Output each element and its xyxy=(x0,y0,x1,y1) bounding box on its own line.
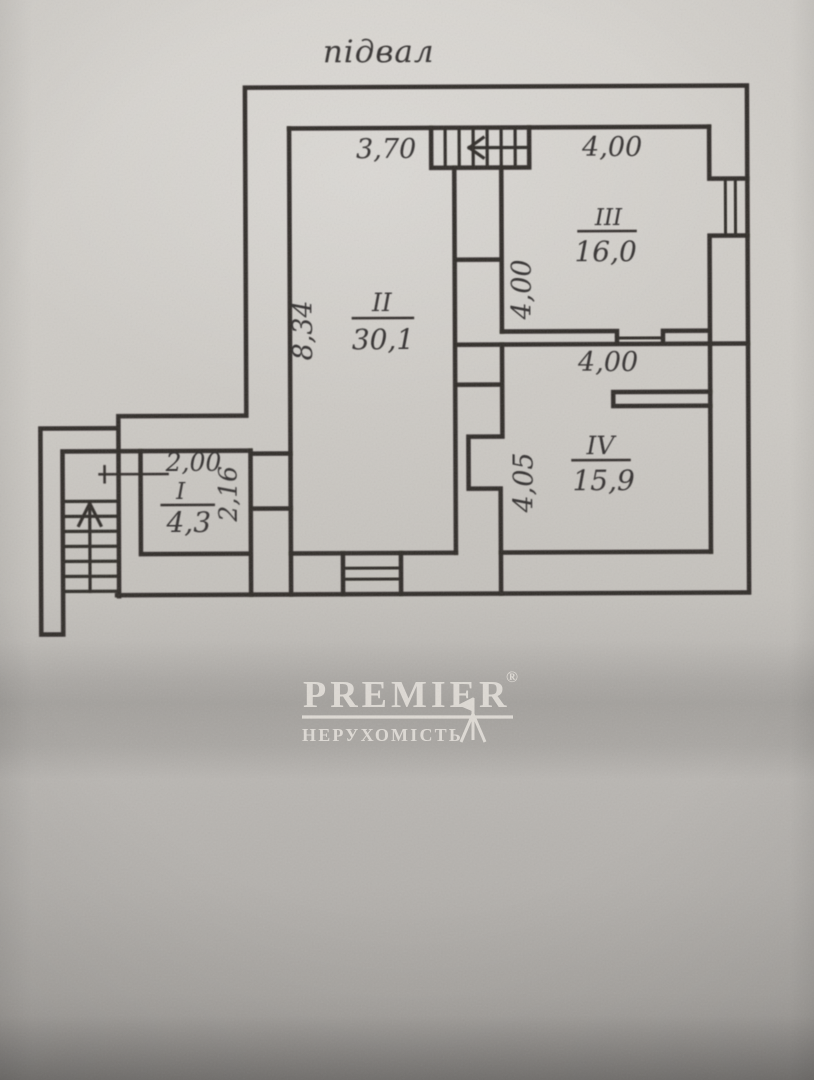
scanned-floor-plan-photo: підвал xyxy=(0,0,814,1080)
paper-grain-texture xyxy=(0,0,814,1080)
floor-plan-drawing: підвал xyxy=(0,0,814,1080)
